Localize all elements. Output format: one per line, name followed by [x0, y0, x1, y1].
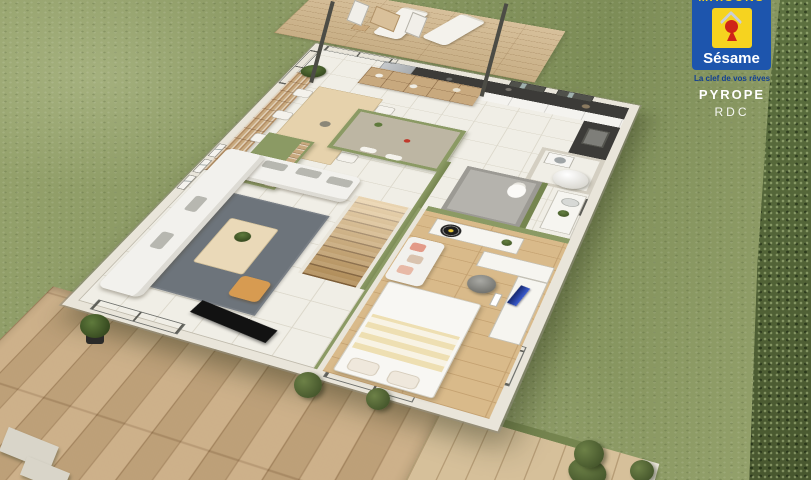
outdoor-potted-plant — [86, 330, 104, 344]
brand-logo: MAISONS Sésame — [692, 0, 771, 70]
turntable — [437, 223, 464, 239]
bathroom-vanity — [539, 190, 587, 235]
sofa-cushion — [149, 231, 175, 250]
brand-tagline: La clef de vos rêves — [672, 74, 792, 83]
sofa-cushion — [294, 167, 322, 179]
sun-lounger — [421, 13, 487, 46]
island-greens — [373, 122, 384, 128]
washing-machine — [543, 152, 575, 168]
keyhole-house-icon — [712, 8, 752, 48]
garden-shrub — [574, 440, 604, 468]
floorplan-render: MAISONS Sésame La clef de vos rêves PYRO… — [0, 0, 811, 480]
toilet — [504, 183, 528, 200]
floor-label: RDC — [672, 105, 792, 119]
water-heater — [549, 167, 592, 192]
garden-shrub — [630, 460, 654, 480]
model-name: PYROPE — [672, 87, 792, 102]
deck-shrub — [366, 388, 390, 410]
keyhole-stem — [727, 30, 737, 41]
sofa-cushion — [261, 160, 289, 172]
beige-cushion — [406, 254, 425, 265]
brand-top-text: MAISONS — [692, 0, 771, 5]
brand-name: Sésame — [692, 50, 771, 68]
pillow — [345, 356, 382, 377]
island-fruit — [403, 139, 411, 144]
deck-shrub — [294, 372, 322, 398]
sofa-cushion — [325, 176, 354, 188]
pink-cushion — [396, 264, 415, 275]
sofa-cushion — [183, 195, 208, 212]
pink-cushion — [409, 242, 428, 253]
